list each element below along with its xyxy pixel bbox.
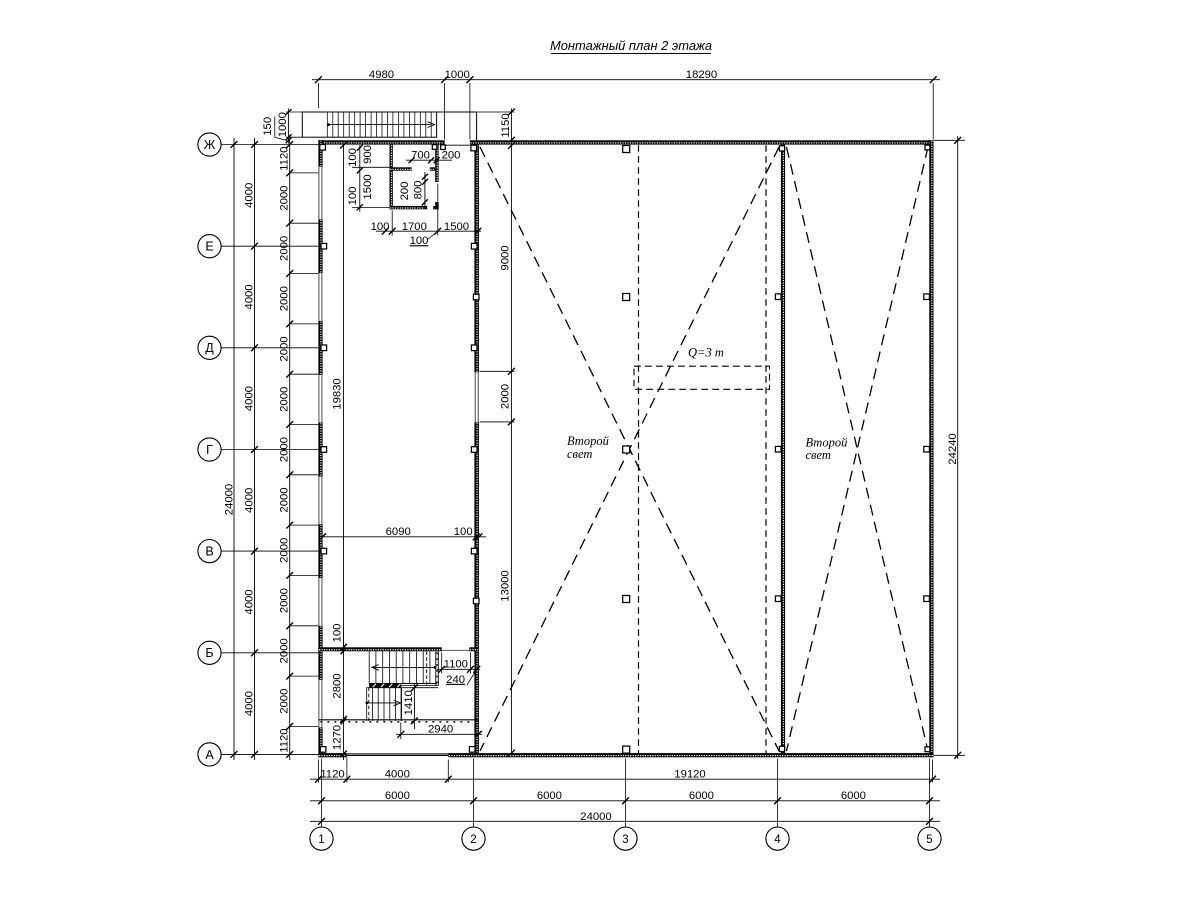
svg-text:200: 200 (399, 182, 411, 201)
svg-text:4: 4 (774, 834, 781, 846)
svg-text:9000: 9000 (500, 245, 512, 270)
svg-text:1270: 1270 (332, 725, 344, 750)
svg-text:100: 100 (347, 148, 359, 167)
svg-text:свет: свет (806, 448, 831, 462)
svg-text:2000: 2000 (279, 437, 291, 462)
svg-text:700: 700 (411, 150, 430, 162)
svg-text:6000: 6000 (537, 790, 562, 802)
svg-text:24240: 24240 (947, 433, 959, 464)
svg-text:2800: 2800 (332, 673, 344, 698)
svg-text:6000: 6000 (841, 790, 866, 802)
svg-text:Ж: Ж (204, 138, 216, 152)
svg-text:1120: 1120 (320, 769, 344, 781)
svg-text:1500: 1500 (362, 174, 374, 199)
svg-text:2000: 2000 (279, 487, 291, 512)
svg-text:Монтажный план 2 этажа: Монтажный план 2 этажа (550, 38, 712, 53)
svg-text:19830: 19830 (332, 378, 344, 409)
svg-text:2000: 2000 (500, 384, 512, 409)
svg-text:6090: 6090 (386, 526, 411, 538)
svg-text:100: 100 (454, 526, 473, 538)
svg-text:2000: 2000 (279, 387, 291, 412)
svg-text:2000: 2000 (279, 286, 291, 311)
svg-text:А: А (205, 748, 214, 762)
svg-text:4000: 4000 (244, 183, 256, 208)
svg-text:18290: 18290 (686, 69, 717, 81)
svg-text:19120: 19120 (674, 769, 705, 781)
svg-text:6000: 6000 (385, 790, 410, 802)
svg-text:3: 3 (622, 834, 628, 846)
svg-text:2000: 2000 (279, 336, 291, 361)
svg-text:В: В (205, 545, 213, 559)
svg-text:240: 240 (446, 674, 465, 686)
svg-text:1700: 1700 (402, 221, 427, 233)
svg-text:4000: 4000 (385, 769, 410, 781)
svg-text:13000: 13000 (500, 570, 512, 601)
svg-text:Г: Г (206, 443, 213, 457)
svg-text:2000: 2000 (279, 538, 291, 563)
svg-text:Q=3 т: Q=3 т (688, 346, 724, 360)
svg-text:1000: 1000 (277, 112, 289, 137)
svg-text:4980: 4980 (369, 69, 394, 81)
svg-text:свет: свет (567, 447, 592, 461)
svg-text:2000: 2000 (279, 689, 291, 714)
svg-text:Б: Б (205, 646, 213, 660)
svg-text:2: 2 (470, 834, 476, 846)
svg-text:2000: 2000 (279, 638, 291, 663)
svg-text:6000: 6000 (689, 790, 714, 802)
svg-text:4000: 4000 (244, 691, 256, 716)
svg-text:24000: 24000 (580, 811, 611, 823)
svg-text:2940: 2940 (428, 724, 453, 736)
svg-text:100: 100 (410, 235, 429, 247)
svg-text:800: 800 (412, 181, 424, 200)
svg-text:100: 100 (347, 187, 359, 206)
svg-text:1000: 1000 (445, 69, 470, 81)
svg-text:150: 150 (262, 117, 274, 136)
svg-text:1100: 1100 (444, 659, 468, 671)
svg-text:5: 5 (926, 834, 932, 846)
svg-text:900: 900 (362, 145, 374, 164)
svg-text:Е: Е (205, 240, 213, 254)
svg-text:4000: 4000 (244, 589, 256, 614)
svg-text:1120: 1120 (279, 728, 291, 752)
svg-text:4000: 4000 (244, 284, 256, 309)
svg-text:100: 100 (332, 624, 344, 643)
svg-text:4000: 4000 (244, 488, 256, 513)
svg-text:24000: 24000 (223, 484, 235, 515)
svg-text:4000: 4000 (244, 386, 256, 411)
svg-text:100: 100 (371, 221, 390, 233)
svg-text:2000: 2000 (279, 236, 291, 261)
svg-text:Второй: Второй (567, 434, 610, 448)
svg-text:1120: 1120 (279, 147, 291, 171)
svg-text:2000: 2000 (279, 186, 291, 211)
svg-text:1: 1 (318, 834, 324, 846)
svg-text:1410: 1410 (403, 690, 415, 715)
svg-text:200: 200 (442, 150, 461, 162)
svg-text:1150: 1150 (500, 113, 512, 137)
svg-text:2000: 2000 (279, 588, 291, 613)
svg-text:Д: Д (205, 341, 214, 355)
svg-text:1500: 1500 (444, 221, 469, 233)
